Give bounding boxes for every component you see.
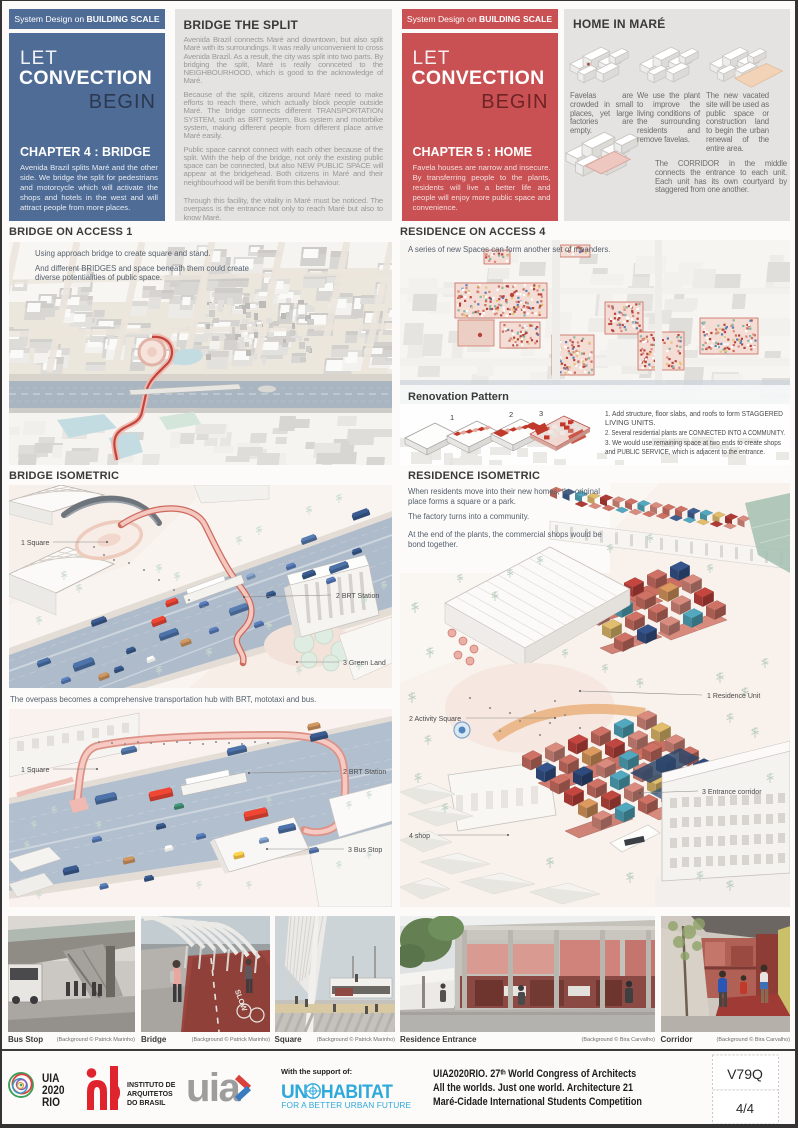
svg-text:All the worlds. Just one world: All the worlds. Just one world. Architec… xyxy=(433,1082,634,1094)
svg-text:HABITAT: HABITAT xyxy=(321,1080,393,1102)
svg-text:3 Bus Stop: 3 Bus Stop xyxy=(348,847,382,854)
svg-text:2 Activity Square: 2 Activity Square xyxy=(409,716,461,723)
svg-text:1 Square: 1 Square xyxy=(21,540,50,547)
svg-text:And different BRIDGES and spac: And different BRIDGES and space beneath … xyxy=(35,264,249,273)
svg-text:With the support of:: With the support of: xyxy=(281,1067,352,1076)
svg-text:ARQUITETOS: ARQUITETOS xyxy=(127,1089,173,1098)
svg-text:diverse potentialities of publ: diverse potentialities of public space. xyxy=(35,273,162,282)
svg-text:3 Green Land: 3 Green Land xyxy=(343,660,386,667)
svg-text:A series of new Spaces can for: A series of new Spaces can form another … xyxy=(408,245,610,254)
svg-text:UIA: UIA xyxy=(42,1072,60,1085)
svg-text:2: 2 xyxy=(509,410,513,419)
svg-text:LIVING UNITS.: LIVING UNITS. xyxy=(605,418,656,427)
svg-text:DO BRASIL: DO BRASIL xyxy=(127,1098,166,1107)
svg-text:2 BRT Station: 2 BRT Station xyxy=(336,593,379,600)
svg-text:and PUBLIC SERVICE, which is a: and PUBLIC SERVICE, which is adjacent to… xyxy=(605,447,765,456)
svg-text:INSTITUTO DE: INSTITUTO DE xyxy=(127,1080,176,1089)
svg-text:FOR A BETTER URBAN FUTURE: FOR A BETTER URBAN FUTURE xyxy=(281,1100,411,1110)
svg-text:1. Add structure, floor slabs,: 1. Add structure, floor slabs, and roofs… xyxy=(605,409,783,418)
svg-text:3. We would use remaining spac: 3. We would use remaining space at two e… xyxy=(605,438,781,447)
svg-text:V79Q: V79Q xyxy=(727,1066,763,1082)
svg-text:3: 3 xyxy=(539,409,543,418)
svg-text:1 Residence Unit: 1 Residence Unit xyxy=(707,693,760,700)
svg-text:2. Several residential plants: 2. Several residential plants are CONNEC… xyxy=(605,428,785,437)
svg-text:Renovation Pattern: Renovation Pattern xyxy=(408,391,509,403)
svg-text:4/4: 4/4 xyxy=(736,1101,754,1116)
svg-text:1: 1 xyxy=(450,413,454,422)
svg-text:uia: uia xyxy=(186,1066,242,1110)
svg-text:2 BRT Station: 2 BRT Station xyxy=(343,769,386,776)
svg-text:2020: 2020 xyxy=(42,1084,65,1097)
svg-text:RIO: RIO xyxy=(42,1096,60,1109)
svg-text:Using approach bridge to creat: Using approach bridge to create square a… xyxy=(35,249,211,258)
svg-text:4 shop: 4 shop xyxy=(409,833,430,840)
svg-text:Maré-Cidade International Stud: Maré-Cidade International Students Compe… xyxy=(433,1096,642,1108)
svg-text:1 Square: 1 Square xyxy=(21,767,50,774)
svg-text:UIA2020RIO. 27ᵗʰ World Congres: UIA2020RIO. 27ᵗʰ World Congress of Archi… xyxy=(433,1068,637,1080)
svg-text:3 Entrance corridor: 3 Entrance corridor xyxy=(702,789,762,796)
